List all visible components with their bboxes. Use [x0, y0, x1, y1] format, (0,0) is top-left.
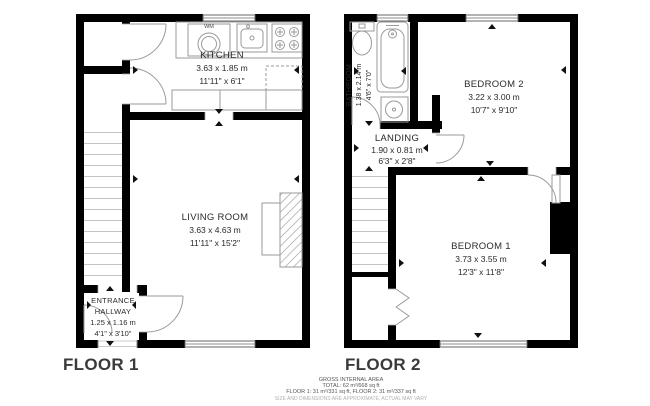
bedroom1-dim-imperial: 12'3" x 11'8"	[451, 266, 511, 279]
disclaimer: SIZE AND DIMENSIONS ARE APPROXIMATE, ACT…	[275, 396, 427, 402]
entrance-hallway-name-2: HALLWAY	[90, 306, 135, 317]
bedroom2-dim-imperial: 10'7" x 9'10"	[464, 104, 524, 117]
area-summary: GROSS INTERNAL AREA TOTAL: 62 m²/668 sq …	[275, 377, 427, 402]
entrance-hallway-label: ENTRANCE HALLWAY 1.25 x 1.16 m 4'1" x 3'…	[90, 295, 135, 339]
bedroom2-name: BEDROOM 2	[464, 78, 524, 91]
living-room-dim-metric: 3.63 x 4.63 m	[182, 224, 249, 237]
entrance-hallway-dim-metric: 1.25 x 1.16 m	[90, 317, 135, 328]
living-room-window	[185, 340, 255, 349]
bedroom1-name: BEDROOM 1	[451, 240, 511, 253]
floor-plan-drawing	[0, 0, 650, 406]
bathroom-window	[377, 14, 408, 23]
bedroom1-chimney	[550, 202, 578, 254]
entrance-hallway-dim-imperial: 4'1" x 3'10"	[90, 328, 135, 339]
living-room-name: LIVING ROOM	[182, 211, 249, 224]
living-room-dim-imperial: 11'11" x 15'2"	[182, 237, 249, 250]
kitchen-sink-icon	[237, 24, 267, 52]
per-floor-area: FLOOR 1: 31 m²/331 sq ft, FLOOR 2: 31 m²…	[275, 389, 427, 395]
bedroom1-label: BEDROOM 1 3.73 x 3.55 m 12'3" x 11'8"	[451, 240, 511, 279]
floor2-windows	[377, 14, 527, 349]
landing-dim-imperial: 6'3" x 2'8"	[371, 156, 423, 168]
living-room-door-arc	[147, 296, 183, 332]
kitchen-counter-bottom	[172, 90, 302, 110]
landing-dim-metric: 1.90 x 0.81 m	[371, 145, 423, 157]
bedroom1-dim-metric: 3.73 x 3.55 m	[451, 253, 511, 266]
bathroom-label: BATHROOM 1.38 x 2.14 m 4'6" x 7'0"	[345, 39, 375, 131]
kitchen-name: KITCHEN	[196, 49, 248, 62]
entrance-hallway-name-1: ENTRANCE	[90, 295, 135, 306]
landing-label: LANDING 1.90 x 0.81 m 6'3" x 2'8"	[371, 133, 423, 168]
cupboard-top-door-arc	[130, 24, 166, 60]
floor1-staircase	[84, 130, 122, 282]
bedroom2-door-arc	[436, 135, 464, 163]
bathroom-dim-metric: 1.38 x 2.14 m	[355, 39, 365, 131]
landing-name: LANDING	[371, 133, 423, 145]
cupboard-bottom-door-arc	[130, 68, 166, 104]
kitchen-label: KITCHEN 3.63 x 1.85 m 11'11" x 6'1"	[196, 49, 248, 88]
bedroom1-window	[440, 340, 527, 349]
floor2-staircase	[352, 170, 388, 272]
bedroom2-label: BEDROOM 2 3.22 x 3.00 m 10'7" x 9'10"	[464, 78, 524, 117]
fireplace	[262, 193, 302, 267]
chimney-breast-hatch	[280, 193, 302, 267]
hearth	[262, 203, 280, 255]
bathroom-sink-icon	[381, 97, 408, 122]
washing-machine-label: WM	[204, 24, 214, 30]
bedroom1-door-arc	[528, 175, 560, 203]
front-door	[98, 340, 137, 349]
kitchen-dim-metric: 3.63 x 1.85 m	[196, 62, 248, 75]
bedroom2-window	[466, 14, 518, 23]
living-room-label: LIVING ROOM 3.63 x 4.63 m 11'11" x 15'2"	[182, 211, 249, 250]
kitchen-dim-imperial: 11'11" x 6'1"	[196, 75, 248, 88]
floor2-title: FLOOR 2	[345, 355, 421, 375]
closet-bifold-doors	[396, 289, 409, 325]
hob-icon	[272, 24, 302, 52]
bathtub-icon	[377, 22, 408, 92]
bathroom-dim-imperial: 4'6" x 7'0"	[365, 39, 375, 131]
floor1-title: FLOOR 1	[63, 355, 139, 375]
floor-plan-canvas: WM KITCHEN 3.63 x 1.85 m 11'11" x 6'1" L…	[0, 0, 650, 406]
bedroom2-dim-metric: 3.22 x 3.00 m	[464, 91, 524, 104]
kitchen-window	[203, 14, 255, 23]
bathroom-name: BATHROOM	[345, 39, 355, 131]
floor2-plan	[344, 14, 578, 349]
